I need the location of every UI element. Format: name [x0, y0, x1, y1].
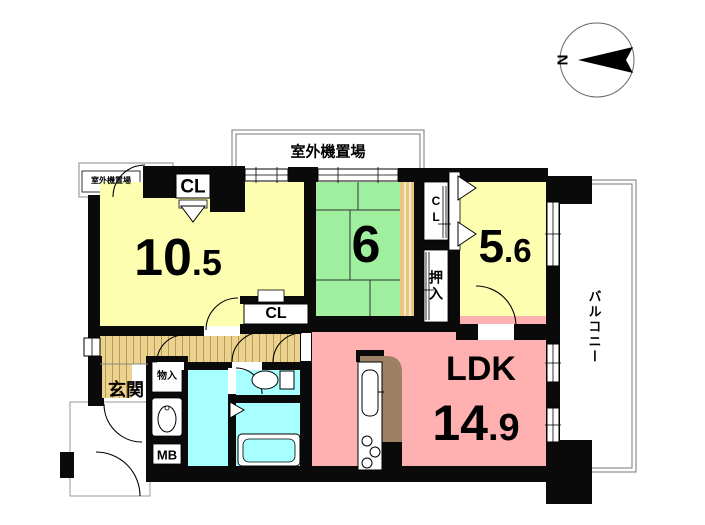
outdoor-unit-top-label: 室外機置場 — [290, 145, 365, 160]
storage-label: 物入 — [157, 372, 177, 382]
closet-side-label: CL — [430, 194, 442, 226]
ldk-size-frac: .9 — [488, 407, 520, 449]
toilet-bowl — [252, 371, 278, 389]
room-western2-size: 5.6 — [478, 223, 531, 269]
room-japanese-size-main: 6 — [352, 216, 381, 274]
room-western2-size-main: 5 — [478, 220, 504, 272]
closet-main-label: CL — [180, 178, 205, 197]
room-western2-size-frac: .6 — [504, 232, 532, 269]
north-arrow — [578, 47, 633, 73]
floor-washroom — [188, 362, 228, 468]
toilet-tank — [280, 371, 294, 389]
oshiire-label: 押入 — [429, 270, 443, 302]
room-western1-size-frac: .5 — [192, 242, 222, 283]
stove-burner — [370, 447, 380, 457]
ldk-size: 14.9 — [432, 398, 519, 448]
stove-burner — [362, 436, 372, 446]
ldk-label: LDK — [446, 352, 516, 386]
room-western1-size-main: 10 — [134, 229, 192, 287]
kitchen-sink — [362, 370, 378, 416]
room-western1-size: 10.5 — [134, 232, 222, 284]
entrance-label: 玄関 — [108, 381, 144, 399]
balcony-label: バルコニー — [588, 290, 601, 365]
north-label: N — [556, 55, 571, 66]
stove-burner — [362, 458, 372, 468]
outdoor-unit-left-label: 室外機置場 — [91, 177, 131, 185]
floor-plan: N 室外機置場 室外機置場 CL CL CL 押入 10.5 6 5.6 LDK… — [0, 0, 705, 525]
room-japanese-size: 6 — [352, 219, 381, 271]
closet-hall-label: CL — [265, 306, 286, 322]
meter-box-label: MB — [157, 449, 177, 462]
ldk-size-main: 14 — [432, 395, 488, 451]
floor-tan-strip — [400, 182, 414, 316]
